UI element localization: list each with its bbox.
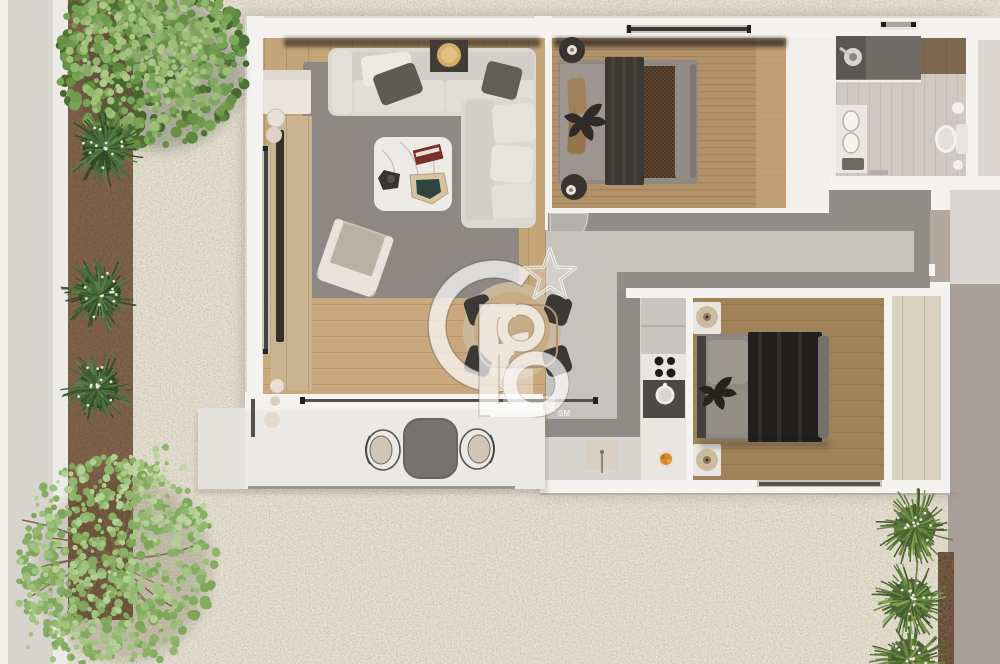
svg-text:SM: SM	[558, 409, 570, 418]
